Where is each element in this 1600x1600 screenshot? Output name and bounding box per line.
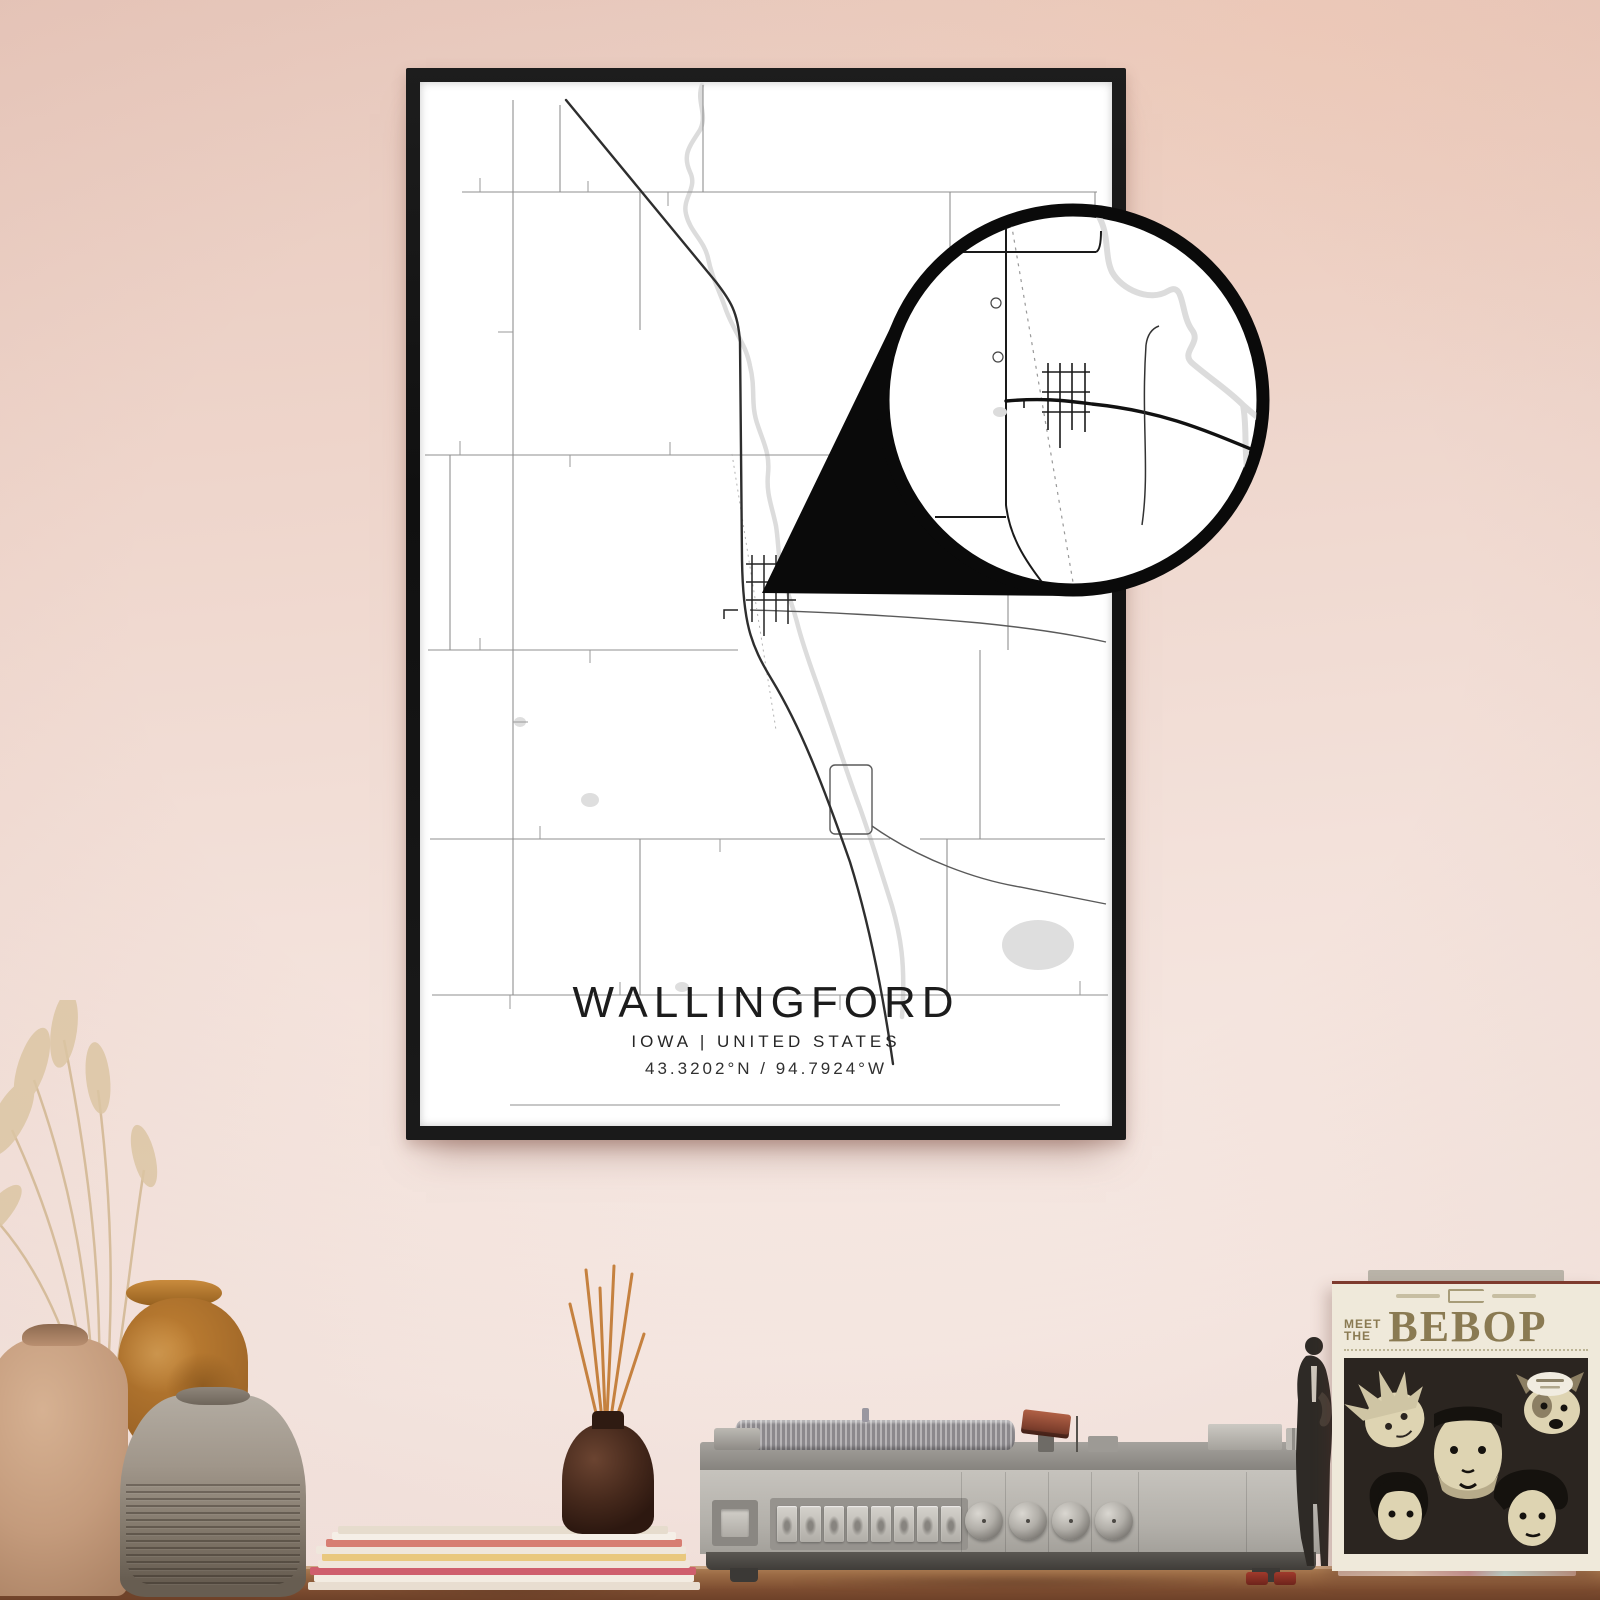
poster-title: WALLINGFORD — [420, 978, 1112, 1028]
magazine — [318, 1560, 690, 1568]
magazine — [322, 1553, 686, 1561]
preset-button — [871, 1506, 891, 1542]
preset-button — [894, 1506, 914, 1542]
deck-knob — [1088, 1436, 1118, 1452]
poster-frame: WALLINGFORD IOWA | UNITED STATES 43.3202… — [406, 68, 1126, 1140]
street-map — [420, 82, 1112, 1126]
room-scene: WALLINGFORD IOWA | UNITED STATES 43.3202… — [0, 0, 1600, 1600]
antenna — [1076, 1416, 1078, 1452]
panel-seam — [1091, 1472, 1092, 1552]
sleeve-title: BEBOP — [1388, 1307, 1547, 1347]
meta-mark — [1492, 1294, 1536, 1298]
magazine — [314, 1574, 694, 1582]
magazine-stack — [308, 1526, 708, 1590]
magazine — [308, 1582, 700, 1590]
preset-button — [777, 1506, 797, 1542]
lake — [1002, 920, 1074, 970]
turntable-platter — [735, 1420, 1015, 1450]
player-foot — [730, 1568, 758, 1582]
sleeve-inner: MEET THE BEBOP — [1344, 1289, 1588, 1559]
preset-button — [847, 1506, 867, 1542]
power-button — [712, 1500, 758, 1546]
poster-subtitle: IOWA | UNITED STATES — [420, 1032, 1112, 1052]
record-label-badge — [1527, 1372, 1573, 1396]
sleeve-title-band: MEET THE BEBOP — [1344, 1303, 1588, 1347]
record-sleeve: MEET THE BEBOP — [1332, 1281, 1600, 1571]
sleeve-subline — [1344, 1349, 1588, 1358]
cover-art-faces — [1344, 1358, 1588, 1554]
vase-tan — [0, 1338, 128, 1596]
sleeve-meta-marks — [1344, 1289, 1588, 1303]
preset-button — [941, 1506, 961, 1542]
record-player — [700, 1406, 1322, 1584]
deck-corner-block — [714, 1428, 760, 1450]
poster-coordinates: 43.3202°N / 94.7924°W — [420, 1059, 1112, 1079]
reed-diffuser-bottle — [562, 1424, 654, 1534]
power-button-cap — [721, 1509, 749, 1537]
panel-seam — [961, 1472, 962, 1552]
panel-seam — [1048, 1472, 1049, 1552]
magazine — [316, 1546, 686, 1554]
magazine — [326, 1539, 682, 1547]
tonearm-head — [1021, 1409, 1072, 1439]
balance-knob — [1052, 1502, 1090, 1540]
sleeve-cover-art — [1344, 1358, 1588, 1554]
cassette-lid — [1208, 1424, 1282, 1450]
panel-seam — [1005, 1472, 1006, 1552]
sleeve-meet-the: MEET THE — [1344, 1318, 1381, 1347]
tone-knob — [1009, 1502, 1047, 1540]
preset-button — [800, 1506, 820, 1542]
preset-button — [917, 1506, 937, 1542]
small-red-objects — [1246, 1572, 1296, 1585]
map-poster: WALLINGFORD IOWA | UNITED STATES 43.3202… — [420, 82, 1112, 1126]
magazine — [310, 1567, 696, 1575]
main-road — [566, 100, 893, 1064]
preset-button — [824, 1506, 844, 1542]
sleeve-label-the: THE — [1344, 1330, 1381, 1343]
town-grid — [724, 555, 796, 636]
river — [685, 85, 903, 1017]
volume-knob — [965, 1502, 1003, 1540]
red-object — [1246, 1572, 1268, 1585]
meta-mark — [1396, 1294, 1440, 1298]
panel-seam — [1246, 1472, 1247, 1552]
stereo-bracket-icon — [1448, 1289, 1484, 1303]
red-object — [1274, 1572, 1296, 1585]
vase-gray — [120, 1395, 306, 1597]
panel-seam — [1138, 1472, 1139, 1552]
preset-button-row — [770, 1498, 968, 1550]
tuning-knob — [1095, 1502, 1133, 1540]
spindle — [862, 1408, 869, 1422]
player-base — [706, 1552, 1316, 1570]
